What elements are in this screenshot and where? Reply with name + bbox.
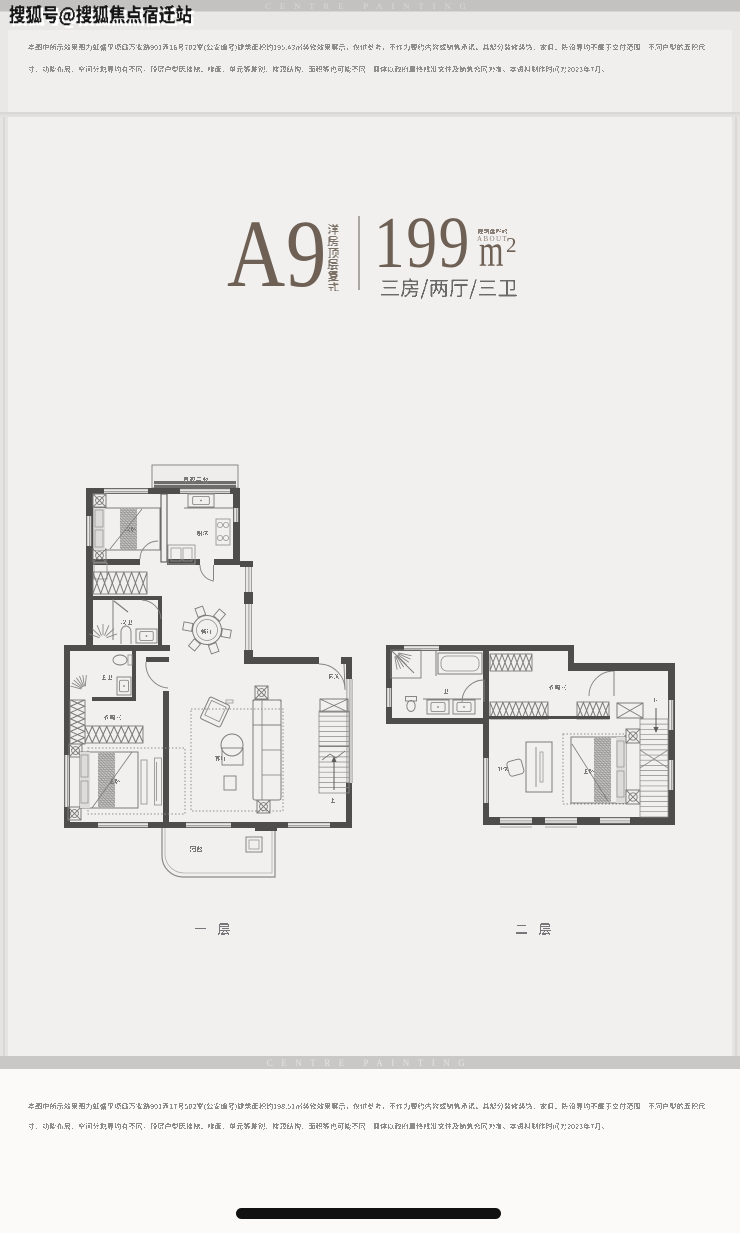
svg-text:A9: A9 [227, 201, 327, 307]
svg-text:ABOUT: ABOUT [477, 235, 508, 243]
svg-text:199: 199 [374, 202, 471, 283]
svg-text:CENTRE PAINTING: CENTRE PAINTING [265, 1, 475, 11]
svg-text:CENTRE PAINTING: CENTRE PAINTING [267, 1058, 473, 1068]
